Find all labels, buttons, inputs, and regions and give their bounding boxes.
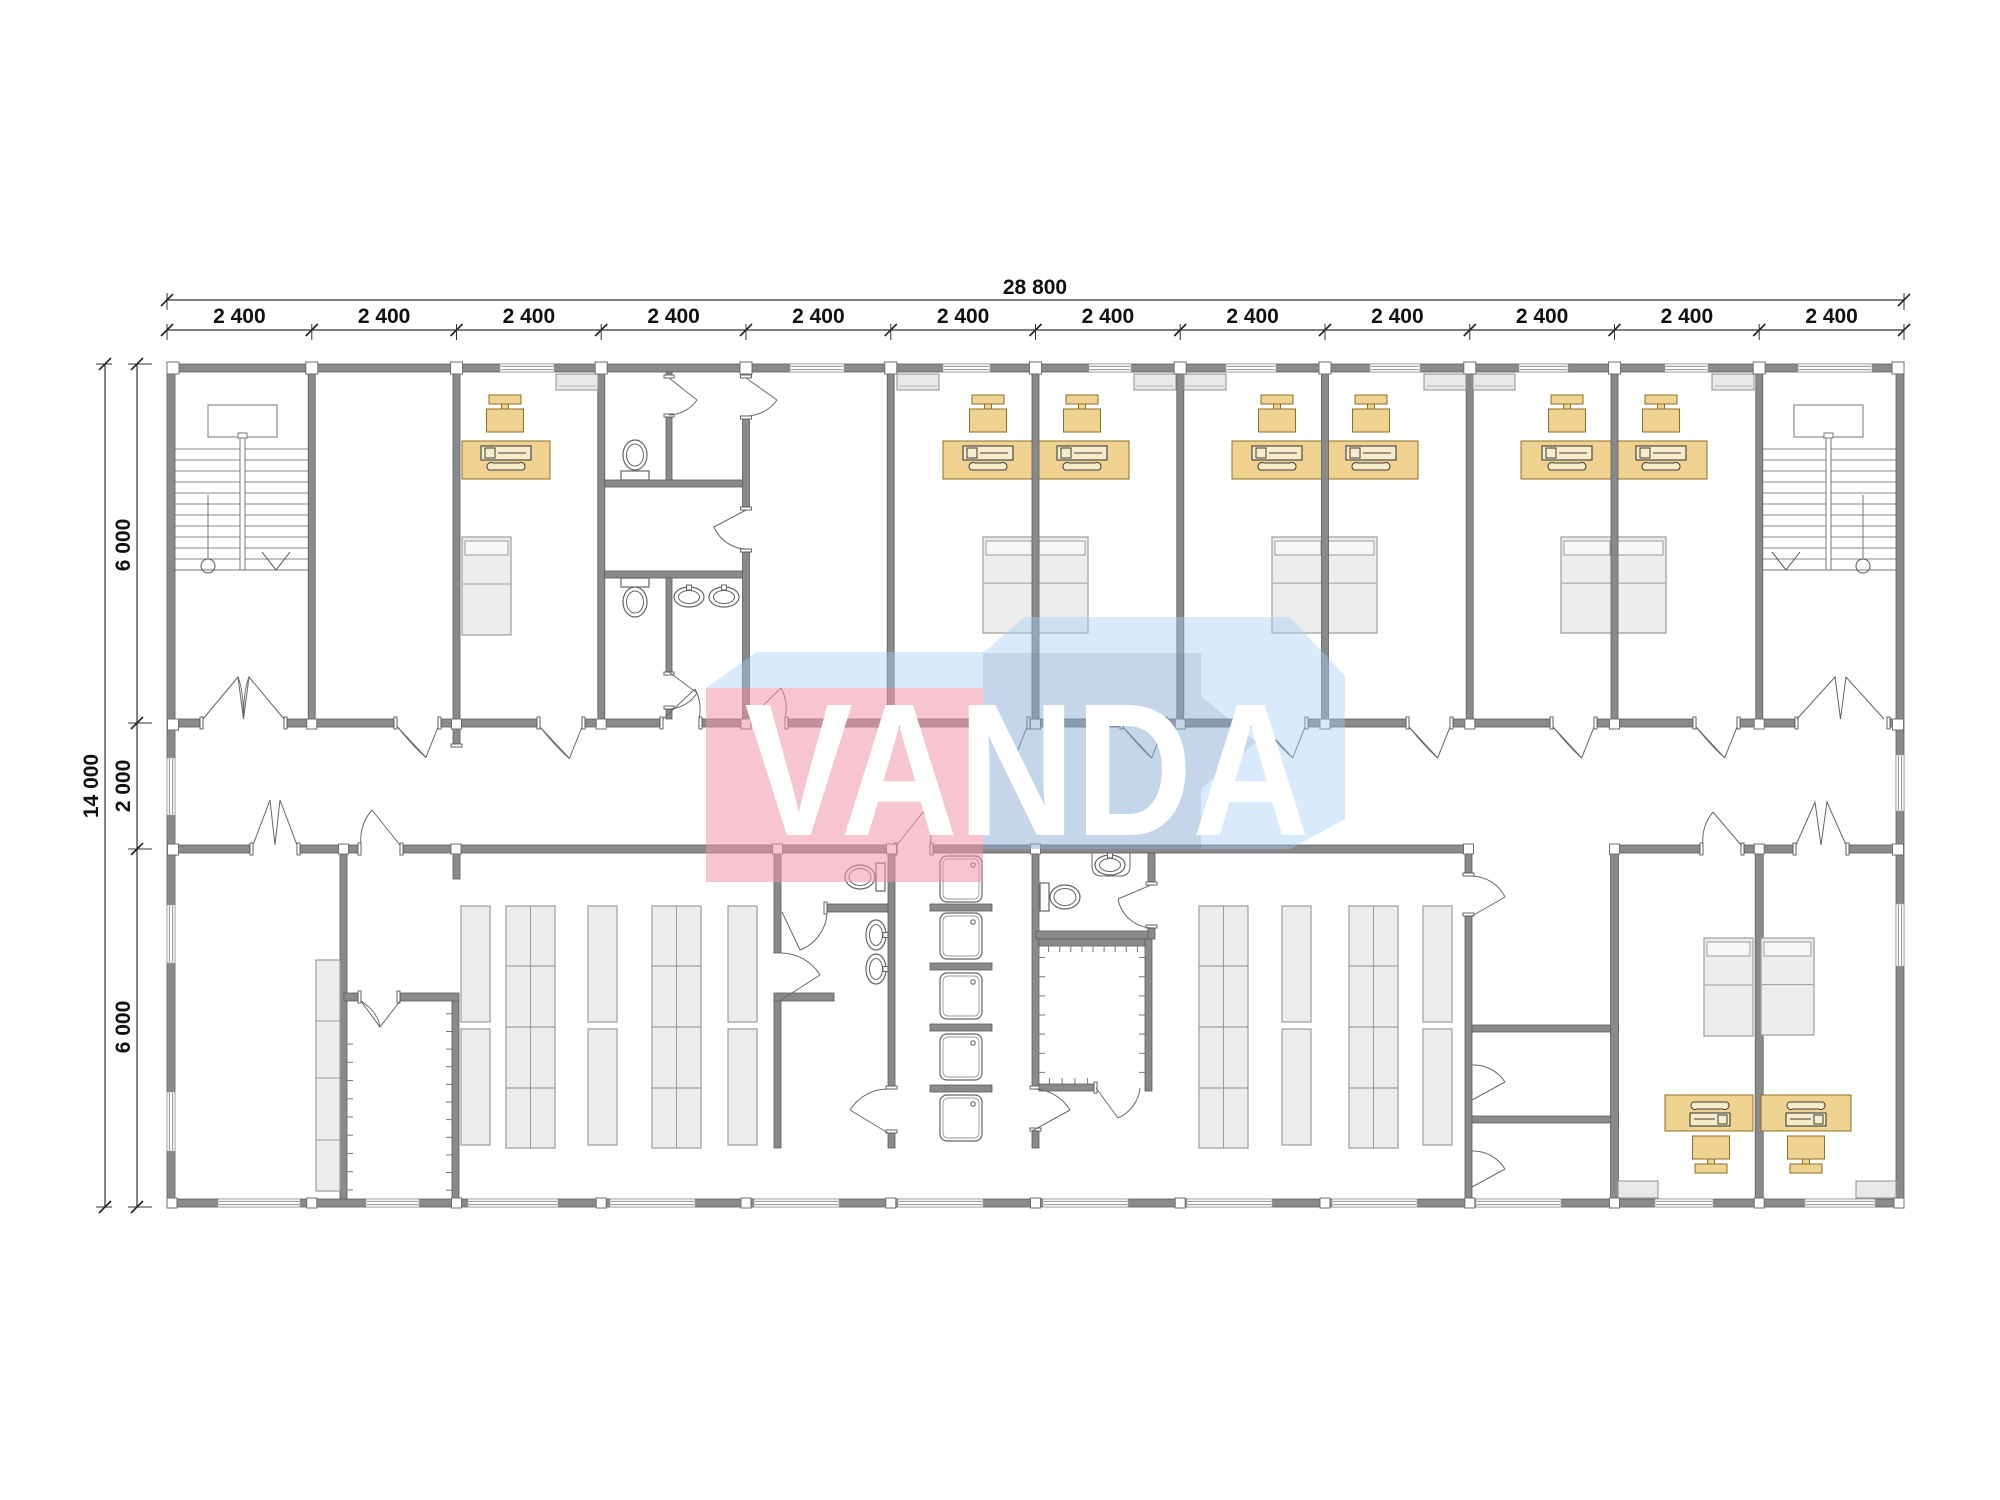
svg-text:2 400: 2 400: [358, 305, 411, 328]
svg-text:2 400: 2 400: [503, 305, 556, 328]
svg-text:2 400: 2 400: [1516, 305, 1569, 328]
svg-text:2 000: 2 000: [112, 760, 135, 813]
svg-text:6 000: 6 000: [112, 519, 135, 572]
svg-text:14 000: 14 000: [80, 754, 103, 818]
svg-text:2 400: 2 400: [937, 305, 990, 328]
svg-text:2 400: 2 400: [213, 305, 266, 328]
svg-text:VANDA: VANDA: [745, 665, 1310, 876]
svg-text:2 400: 2 400: [1226, 305, 1279, 328]
svg-text:2 400: 2 400: [1082, 305, 1135, 328]
svg-text:2 400: 2 400: [647, 305, 700, 328]
svg-text:6 000: 6 000: [112, 1001, 135, 1054]
svg-text:2 400: 2 400: [1371, 305, 1424, 328]
svg-text:2 400: 2 400: [1805, 305, 1858, 328]
svg-text:2 400: 2 400: [792, 305, 845, 328]
svg-text:28 800: 28 800: [1003, 276, 1067, 299]
svg-text:2 400: 2 400: [1661, 305, 1714, 328]
